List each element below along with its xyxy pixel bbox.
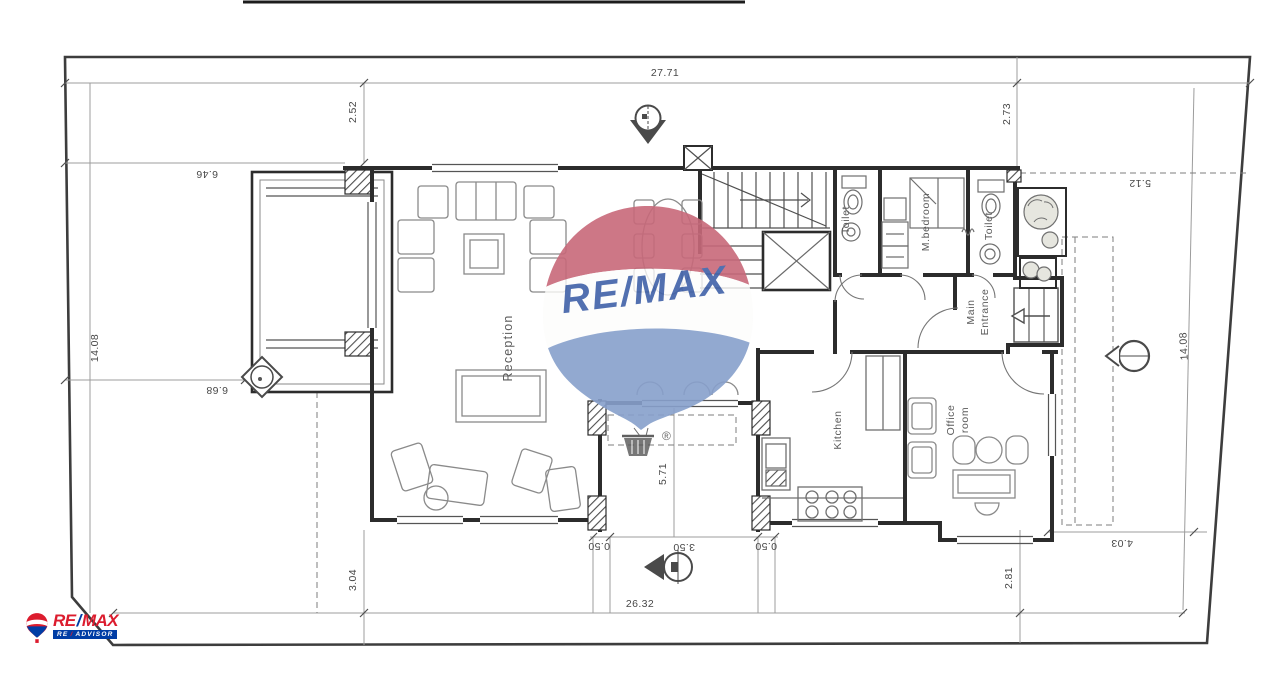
room-label-toilet-b: Toilet [983,212,995,240]
dim-left-upper-setback: 6.46 [196,168,218,180]
dim-right-upper-setback: 5.12 [1129,177,1151,189]
room-label-kitchen: Kitchen [832,410,844,449]
floorplan-page: Reception Toilet M.bedroom Toilet Main E… [0,0,1280,681]
dim-right-lower-setback: 4.03 [1111,537,1133,549]
dim-right-height: 14.08 [1177,332,1190,361]
logo-bar-slash: / [70,630,73,639]
window-sill-block [345,170,372,194]
logo-bar-advisor: ADVISOR [75,630,113,639]
remax-balloon-icon [24,612,50,644]
dim-porch-width: 3.50 [673,541,695,553]
logo-advisor-bar: RE/ADVISOR [53,630,117,639]
watermark-registered-mark: ® [662,429,671,443]
room-label-office-2: room [959,407,971,433]
dim-bottom-width: 26.32 [626,598,654,610]
room-label-master-bedroom: M.bedroom [920,193,932,252]
dim-top-left-setback: 2.52 [347,101,359,123]
floorplan-drawing: Reception Toilet M.bedroom Toilet Main E… [0,0,1280,681]
logo-wordmark: RE/MAX [53,612,118,629]
room-label-office-1: Office [945,405,957,436]
window-sill-block [345,332,372,356]
dim-left-lower-setback: 6.68 [206,384,228,396]
dim-porch-column-right: 0.50 [755,540,777,552]
dim-left-height: 14.08 [89,334,101,362]
remax-corner-logo: RE/MAX RE/ADVISOR [24,612,118,644]
dim-porch-depth: 5.71 [657,463,669,485]
room-label-toilet-a: Toilet [840,206,852,234]
logo-max: MAX [82,611,118,630]
logo-re: RE [53,611,76,630]
dim-porch-column-left: 0.50 [588,540,610,552]
dim-top-right-setback: 2.73 [1001,103,1013,125]
room-label-main-entrance-2: Entrance [979,289,991,336]
logo-bar-re: RE [57,630,68,639]
dim-bottom-left-setback: 3.04 [347,569,359,591]
room-label-main-entrance-1: Main [965,299,977,324]
room-label-reception: Reception [501,314,515,381]
dim-top-width: 27.71 [651,67,679,79]
dim-bottom-right-setback: 2.81 [1003,567,1015,589]
